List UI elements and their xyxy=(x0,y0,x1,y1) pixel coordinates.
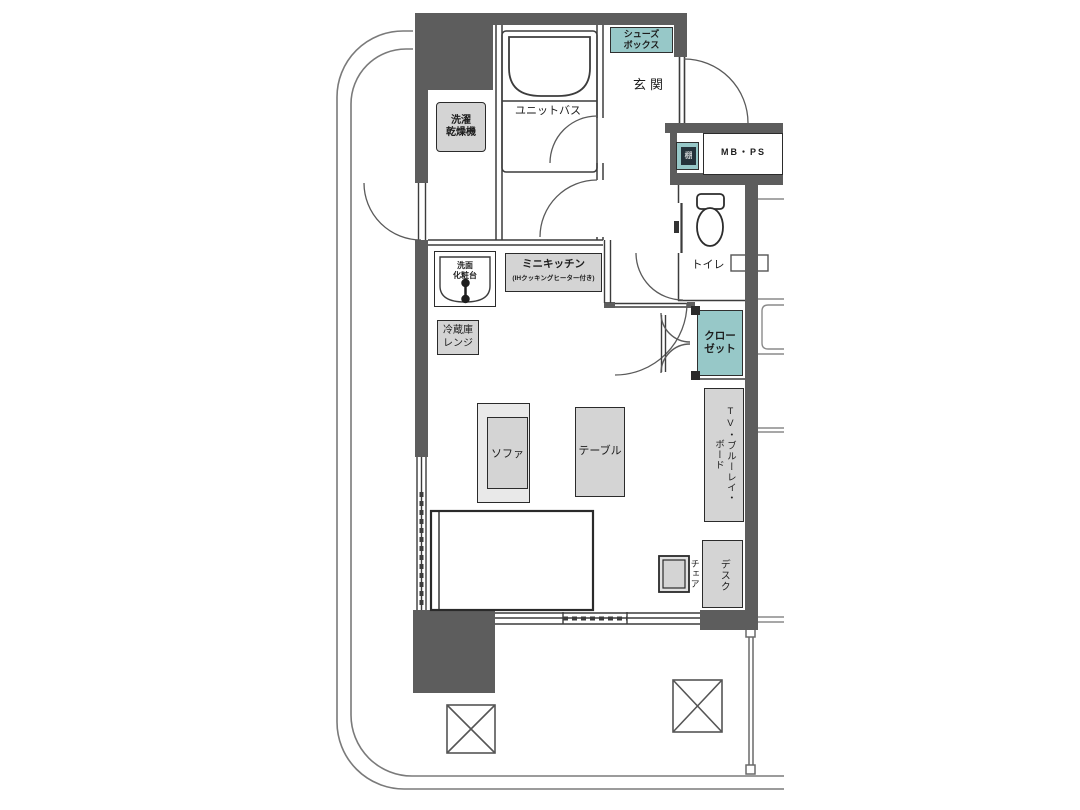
fridge-label: 冷蔵庫 レンジ xyxy=(438,322,478,353)
door-swing-arc xyxy=(540,180,597,237)
door-handle xyxy=(674,221,679,233)
door-swing-arc xyxy=(550,116,597,163)
tv-board-label: TV・ブルーレイ・ ボード xyxy=(706,392,742,518)
window-bottom xyxy=(495,612,700,624)
genkan-label: 玄関 xyxy=(622,76,678,94)
window-left xyxy=(417,457,426,610)
closet-corner-tick xyxy=(691,371,700,380)
door-swing-arcs-bath xyxy=(540,116,597,237)
vanity-label: 洗面 化粧台 xyxy=(438,256,492,286)
toilet-label: トイレ xyxy=(686,258,730,274)
closet-corner-tick xyxy=(691,306,700,315)
door-swing-arc xyxy=(364,183,421,240)
door-swing-arc xyxy=(636,253,683,300)
interior-linework xyxy=(0,0,1080,810)
side-door xyxy=(364,183,426,240)
sofa-label: ソファ xyxy=(485,447,530,463)
table-label: テーブル xyxy=(575,444,625,460)
bathtub-icon xyxy=(509,37,590,96)
entrance-door xyxy=(680,57,749,123)
mini-kitchen-label: ミニキッチン xyxy=(506,257,601,273)
shoes-box-label: シューズ ボックス xyxy=(608,28,675,52)
desk-label: デスク xyxy=(710,552,736,598)
hall-partition xyxy=(605,240,688,307)
mbps-label: MB・PS xyxy=(706,144,781,162)
washer-dryer-label: 洗濯 乾燥機 xyxy=(436,104,486,150)
shelf-label: 棚 xyxy=(681,147,696,165)
chair xyxy=(659,556,689,592)
chair-label: チェア xyxy=(687,553,701,595)
floorplan-canvas: シューズ ボックス 玄関 ユニットバス 洗濯 乾燥機 棚 MB・PS トイレ 洗… xyxy=(0,0,1080,810)
door-swing-arc xyxy=(684,59,748,123)
toilet-icon xyxy=(697,194,724,246)
closet-label: クロー ゼット xyxy=(699,318,741,368)
mini-kitchen-note: (IHクッキングヒーター付き) xyxy=(504,273,603,285)
unit-bath-label: ユニットバス xyxy=(502,104,594,120)
bed xyxy=(431,511,593,610)
toilet-room xyxy=(636,185,745,301)
